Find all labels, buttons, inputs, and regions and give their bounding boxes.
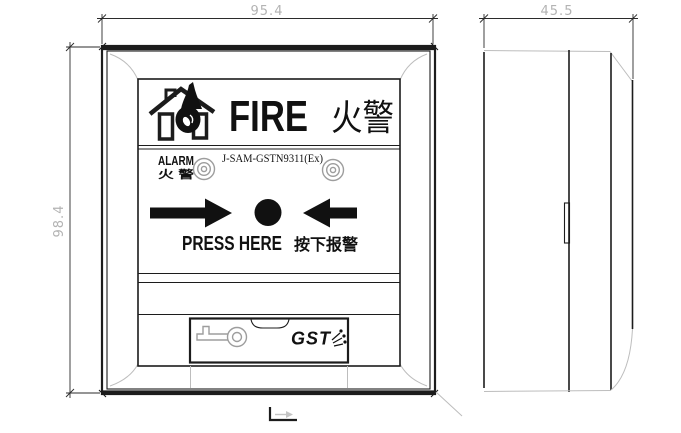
side-top-chamfer bbox=[610, 52, 632, 82]
dim-front-height-label: 98.4 bbox=[52, 205, 67, 238]
key-icon bbox=[197, 327, 247, 347]
alarm-label-en: ALARM bbox=[158, 154, 194, 168]
dimension-front-height: 98.4 bbox=[52, 42, 100, 398]
drawing-canvas: 95.4 45.5 98.4 bbox=[0, 0, 681, 433]
bevel-curve-br bbox=[400, 364, 427, 386]
side-bottom-edge bbox=[484, 391, 611, 392]
side-bottom-chamfer bbox=[611, 329, 633, 390]
dim-front-width-label: 95.4 bbox=[251, 4, 284, 19]
brand-burst-icon bbox=[332, 330, 346, 346]
bevel-curve-tr bbox=[400, 54, 427, 80]
bevel-curve-bl bbox=[110, 364, 138, 386]
dimension-side-depth: 45.5 bbox=[479, 4, 638, 79]
alarm-led-icon-right bbox=[323, 160, 344, 181]
dim-side-depth-label: 45.5 bbox=[541, 4, 574, 19]
fire-label-zh: 火警 bbox=[331, 97, 394, 138]
press-here-label-en: PRESS HERE bbox=[182, 233, 282, 255]
model-number-label: J-SAM-GSTN9311(Ex) bbox=[222, 151, 323, 165]
house-flame-icon bbox=[150, 82, 214, 139]
side-view bbox=[484, 50, 633, 392]
alarm-led-icon-left bbox=[194, 159, 215, 180]
press-button-circle bbox=[255, 199, 282, 226]
press-here-label-zh: 按下报警 bbox=[294, 235, 358, 254]
thumb-notch bbox=[251, 320, 289, 329]
brand-logo-text: GST bbox=[291, 329, 332, 349]
dimension-front-width: 95.4 bbox=[97, 4, 438, 44]
side-top-edge bbox=[484, 51, 610, 52]
fire-label-en: FIRE bbox=[229, 92, 308, 141]
alarm-label-zh: 火 警 bbox=[158, 167, 194, 181]
inward-arrow-left-icon bbox=[303, 199, 357, 228]
inward-arrow-right-icon bbox=[150, 199, 232, 228]
bevel-curve-tl bbox=[110, 54, 138, 80]
stray-corner-line bbox=[436, 392, 462, 416]
technical-drawing: 95.4 45.5 98.4 bbox=[0, 0, 681, 433]
front-view: FIRE 火警 ALARM 火 警 J-SAM-GSTN9311(Ex) PRE… bbox=[99, 43, 462, 416]
l-datum-mark bbox=[270, 407, 297, 420]
